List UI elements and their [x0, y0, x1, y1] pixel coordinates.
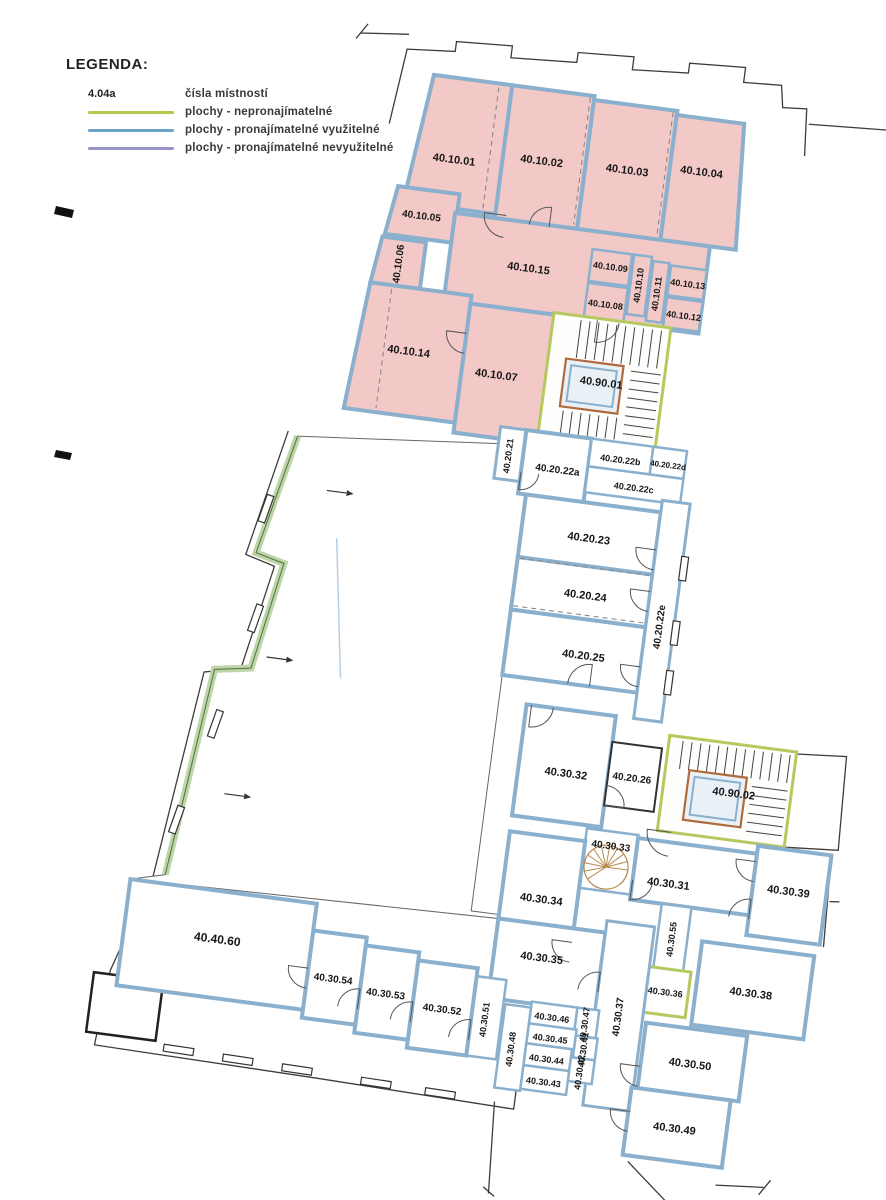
legend-line-green	[88, 111, 174, 114]
window-tick	[163, 1044, 194, 1055]
legend-line-blue	[88, 129, 174, 132]
legend-row-rentable-unusable: plochy - pronajímatelné nevyužitelné	[66, 139, 394, 157]
room-40.10.04	[660, 115, 752, 250]
legend: LEGENDA: 4.04a čísla místností plochy - …	[66, 56, 394, 157]
legend-line-green-text: plochy - nepronajímatelné	[185, 106, 333, 118]
legend-row-room-number: 4.04a čísla místností	[66, 85, 394, 103]
legend-row-non-rentable: plochy - nepronajímatelné	[66, 103, 394, 121]
window-tick	[425, 1088, 456, 1099]
floor-plan: 40.10.0140.10.0240.10.0340.10.0440.10.05…	[0, 0, 886, 1200]
exterior-wall-line	[621, 1161, 689, 1200]
margin-mark	[54, 450, 72, 460]
plan-rotated-group: 40.10.0140.10.0240.10.0340.10.0440.10.05…	[72, 0, 886, 1200]
legend-line-purple	[88, 147, 174, 150]
window-tick	[361, 1077, 392, 1088]
margin-mark	[54, 206, 74, 218]
exterior-wall-line	[356, 23, 410, 46]
window-tick	[222, 1054, 253, 1065]
legend-line-blue-text: plochy - pronajímatelné využitelné	[185, 124, 380, 136]
room-40.30.34	[498, 831, 585, 928]
legend-sample-text: čísla místností	[185, 88, 268, 100]
legend-sample-room-number: 4.04a	[66, 88, 185, 100]
legend-row-rentable-usable: plochy - pronajímatelné využitelné	[66, 121, 394, 139]
legend-line-purple-text: plochy - pronajímatelné nevyužitelné	[185, 142, 394, 154]
room-40.30.35	[488, 919, 606, 1012]
exterior-wall-line	[715, 1173, 771, 1196]
room-40.30.32	[512, 704, 616, 827]
exterior-wall-line	[788, 117, 886, 301]
exterior-wall-line	[482, 1102, 506, 1197]
room-40.30.33	[579, 828, 638, 894]
legend-title: LEGENDA:	[66, 56, 394, 73]
floorplan-page: { "legend": { "title": "LEGENDA:", "samp…	[0, 0, 886, 1200]
